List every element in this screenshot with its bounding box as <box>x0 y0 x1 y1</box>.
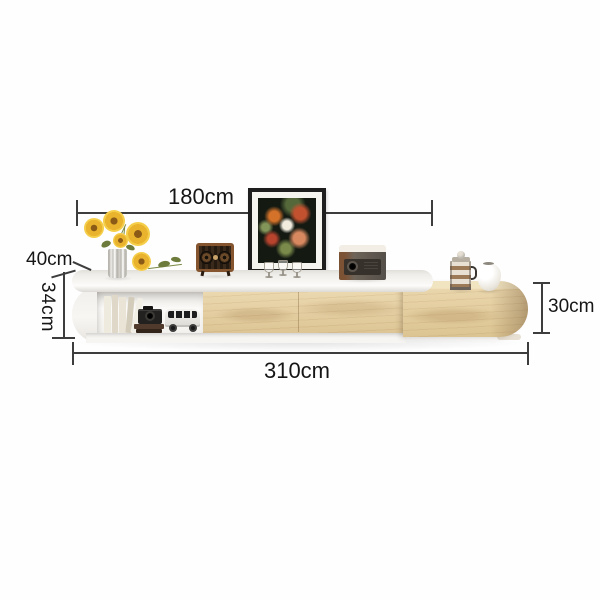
toy-camera-viewfinder <box>143 306 153 310</box>
sunflower <box>84 218 104 238</box>
cut-sunflower <box>132 252 151 271</box>
tv-stand-base <box>86 333 406 343</box>
ceramic-jug-mouth <box>483 262 494 265</box>
radio-speaker-right <box>218 251 231 264</box>
dimension-tick-total-length-left <box>72 342 74 365</box>
dimension-label-depth: 40cm <box>26 249 72 271</box>
projector-vents <box>364 262 378 271</box>
dimension-label-right-height: 30cm <box>548 296 594 318</box>
dimension-tick-top-width-left <box>76 200 78 226</box>
cut-flower-leaf <box>158 260 171 268</box>
drawer-seam <box>298 291 299 332</box>
floral-artwork <box>258 198 316 263</box>
stacked-books <box>136 329 162 333</box>
cut-flower-leaf <box>171 256 182 263</box>
sunflower <box>126 222 150 246</box>
wine-glass-foot <box>265 276 273 278</box>
dimension-tick-right-height-top <box>533 282 550 284</box>
dimension-line-right-height <box>541 283 543 333</box>
french-press <box>450 261 471 288</box>
toy-van-wheel <box>189 324 197 332</box>
shelf-book <box>104 296 111 333</box>
product-dimension-diagram: 180cm 40cm 34cm 30cm 310cm <box>0 0 600 600</box>
radio-knob <box>213 255 218 260</box>
dimension-tick-right-height-bottom <box>533 332 550 334</box>
tv-stand-drawers <box>198 290 404 333</box>
french-press-base <box>450 287 471 290</box>
dimension-label-top-width: 180cm <box>146 184 256 210</box>
toy-van-wheel <box>169 324 177 332</box>
projector-top-cover <box>339 245 386 252</box>
camera-lens <box>145 311 155 321</box>
dimension-tick-total-length-right <box>527 342 529 365</box>
dimension-label-left-height: 34cm <box>36 282 58 332</box>
flower-leaf <box>100 239 112 249</box>
wine-glass-foot <box>279 274 287 276</box>
wine-glass-foot <box>293 276 301 278</box>
radio-speaker-left <box>200 251 213 264</box>
shelf-book <box>112 295 118 333</box>
projector-lens <box>347 261 358 272</box>
glass-vase <box>108 249 127 278</box>
french-press-handle <box>470 266 477 280</box>
dimension-line-left-height <box>63 272 65 338</box>
dimension-line-total-length <box>73 352 528 354</box>
sunflower <box>103 210 125 232</box>
dimension-tick-top-width-right <box>431 200 433 226</box>
dimension-tick-left-height-bottom <box>52 337 75 339</box>
toy-van-windows <box>168 311 197 318</box>
dimension-label-total-length: 310cm <box>242 358 352 384</box>
french-press-knob <box>457 251 465 259</box>
